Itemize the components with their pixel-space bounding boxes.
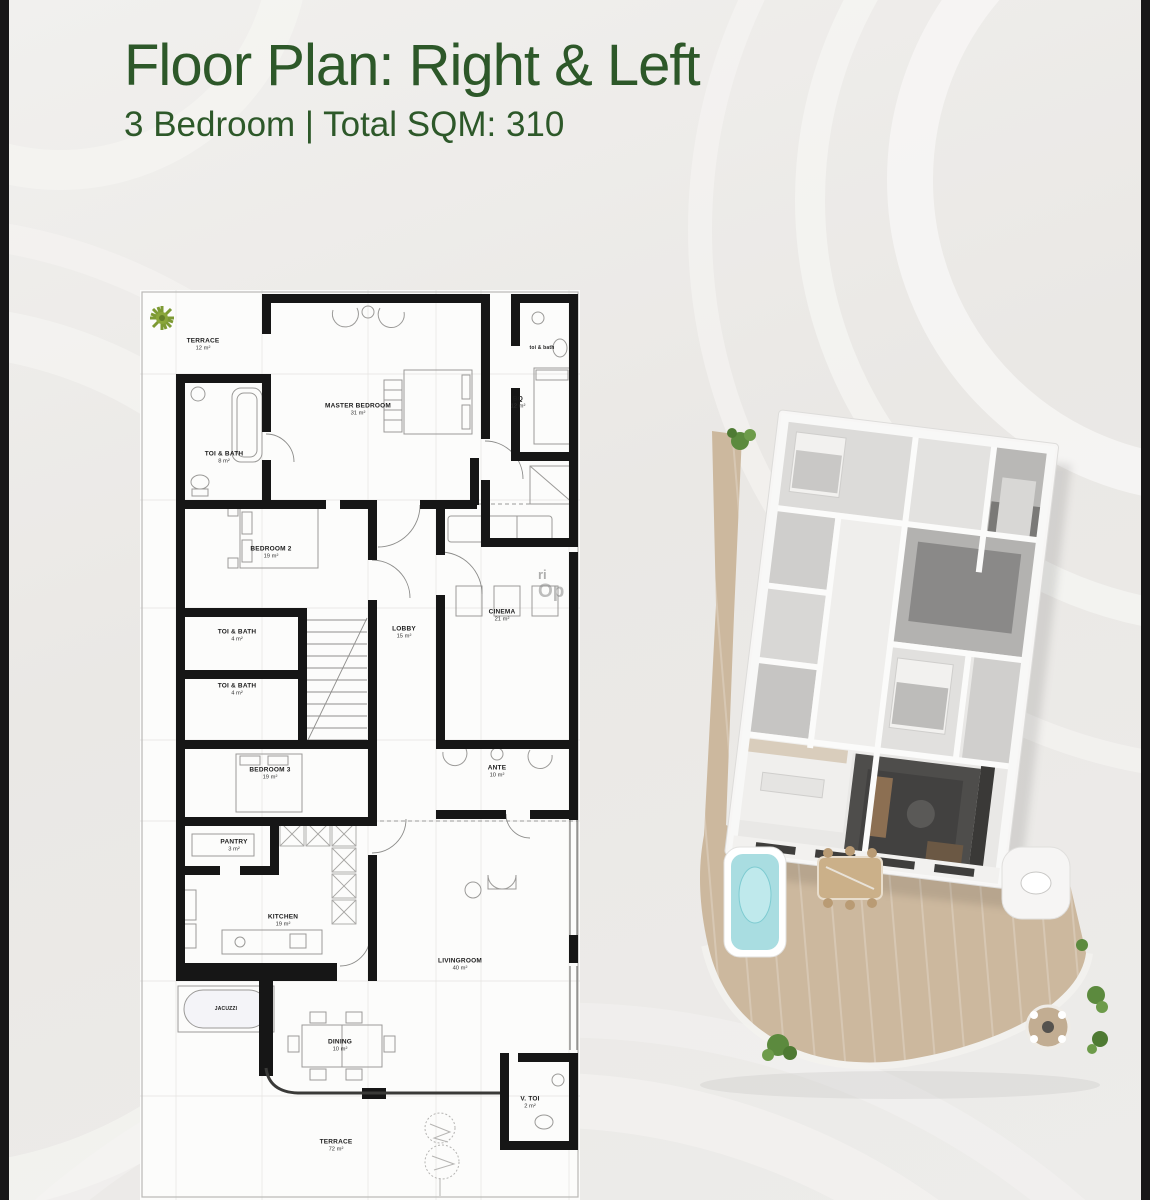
dining-set-3d [818, 846, 882, 910]
room-label-toi-bath-4b: TOI & BATH4 m² [218, 683, 257, 698]
page-subtitle: 3 Bedroom | Total SQM: 310 [124, 105, 700, 145]
room-name: TOI & BATH [218, 629, 257, 637]
room-name: BQ [511, 396, 526, 404]
room-label-toi-bath-8: TOI & BATH8 m² [205, 451, 244, 466]
room-name: MASTER BEDROOM [325, 403, 391, 411]
room-name: JACUZZI [215, 1006, 238, 1012]
screen-edge-right [1141, 0, 1150, 1200]
floor-plan-3d-render [650, 405, 1120, 1120]
room-label-ante: ANTE10 m² [488, 765, 507, 780]
apartment-block [722, 410, 1074, 910]
room-name: TOI & BATH [218, 683, 257, 691]
room-label-livingroom: LIVINGROOM40 m² [438, 958, 482, 973]
plant-icon [150, 306, 174, 330]
watermark-fragment: ri [538, 568, 564, 582]
room-name: LOBBY [392, 626, 416, 634]
room-label-jacuzzi: JACUZZI [215, 1006, 238, 1012]
room-area: 2 m² [520, 1103, 539, 1110]
room-area: 12 m² [187, 345, 220, 352]
room-label-v-toi: V. TOI2 m² [520, 1096, 539, 1111]
room-name: BEDROOM 3 [249, 767, 290, 775]
room-label-terrace-12: TERRACE12 m² [187, 338, 220, 353]
room-area: 19 m² [250, 553, 291, 560]
room-label-terrace-72: TERRACE72 m² [320, 1139, 353, 1154]
render-drawing [650, 405, 1120, 1120]
room-name: toi & bath [529, 345, 554, 351]
room-area: 19 m² [249, 774, 290, 781]
room-name: KITCHEN [268, 914, 298, 922]
room-label-toi-bath-4a: TOI & BATH4 m² [218, 629, 257, 644]
room-area: 31 m² [325, 410, 391, 417]
room-name: ANTE [488, 765, 507, 773]
room-label-toi-bath-top: toi & bath [529, 345, 554, 351]
room-name: TOI & BATH [205, 451, 244, 459]
room-name: DINING [328, 1039, 352, 1047]
floor-plan-2d: TERRACE12 m² MASTER BEDROOM31 m² toi & b… [140, 290, 580, 1200]
room-label-cinema: CINEMA21 m² [489, 609, 516, 624]
room-area: 15 m² [392, 633, 416, 640]
room-label-kitchen: KITCHEN19 m² [268, 914, 298, 929]
room-name: PANTRY [220, 839, 247, 847]
room-area: 3 m² [220, 846, 247, 853]
room-label-master-bedroom: MASTER BEDROOM31 m² [325, 403, 391, 418]
room-name: CINEMA [489, 609, 516, 617]
room-name: V. TOI [520, 1096, 539, 1104]
watermark-fragment: Op [538, 582, 564, 603]
room-name: LIVINGROOM [438, 958, 482, 966]
ground-shadow [700, 1071, 1100, 1099]
header: Floor Plan: Right & Left 3 Bedroom | Tot… [124, 36, 700, 145]
room-label-dining: DINING10 m² [328, 1039, 352, 1054]
screen-edge-left [0, 0, 9, 1200]
room-area: 72 m² [320, 1146, 353, 1153]
room-area: 4 m² [218, 636, 257, 643]
room-name: TERRACE [187, 338, 220, 346]
room-area: 8 m² [205, 458, 244, 465]
page: Floor Plan: Right & Left 3 Bedroom | Tot… [0, 0, 1150, 1200]
room-label-bedroom-3: BEDROOM 319 m² [249, 767, 290, 782]
watermark: ri Op [538, 568, 564, 603]
room-label-bq: BQ12 m² [511, 396, 526, 411]
room-name: TERRACE [320, 1139, 353, 1147]
vtoi-bump [1002, 847, 1070, 919]
room-area: 12 m² [511, 403, 526, 410]
room-area: 21 m² [489, 616, 516, 623]
room-area: 10 m² [328, 1046, 352, 1053]
room-label-lobby: LOBBY15 m² [392, 626, 416, 641]
room-area: 4 m² [218, 690, 257, 697]
room-area: 10 m² [488, 772, 507, 779]
page-title: Floor Plan: Right & Left [124, 36, 700, 97]
jacuzzi-3d [724, 847, 786, 957]
room-area: 40 m² [438, 965, 482, 972]
room-area: 19 m² [268, 921, 298, 928]
room-label-bedroom-2: BEDROOM 219 m² [250, 546, 291, 561]
plan-drawing [140, 290, 580, 1200]
round-table-3d [1027, 1006, 1069, 1048]
room-name: BEDROOM 2 [250, 546, 291, 554]
room-label-pantry: PANTRY3 m² [220, 839, 247, 854]
